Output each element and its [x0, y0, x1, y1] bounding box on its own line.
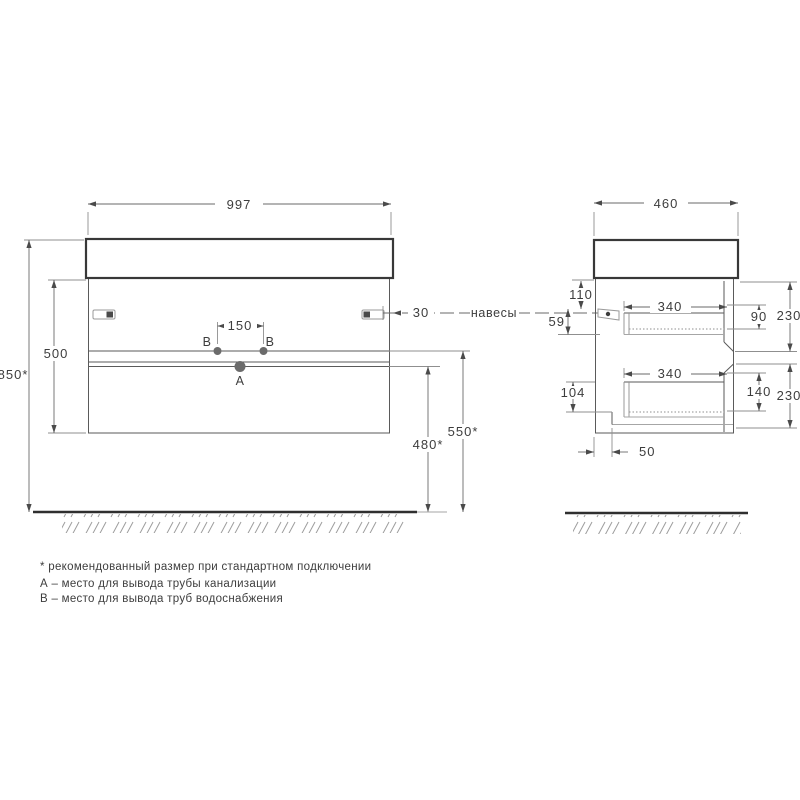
vanity-cabinet-drawing: B B A 997 850* 500 150 30 навесы — [0, 0, 800, 800]
footnote-point-b: B – место для вывода труб водоснабжения — [40, 593, 283, 605]
total-height-dim: 850* — [0, 367, 28, 382]
technical-drawing-page: B B A 997 850* 500 150 30 навесы — [0, 0, 800, 800]
water-height-dim: 550* — [448, 424, 479, 439]
hanger-top-dim: 110 — [569, 287, 593, 302]
top-drawer-depth-dim: 340 — [658, 299, 683, 314]
front-view: B B A 997 850* 500 150 30 навесы — [0, 197, 598, 533]
point-b-right-label: B — [266, 335, 275, 349]
footnotes: * рекомендованный размер при стандартном… — [40, 561, 371, 605]
lower-front-chamfer — [724, 364, 734, 373]
point-a-label: A — [236, 374, 245, 388]
footnote-point-a: А – место для вывода трубы канализации — [40, 578, 276, 590]
depth-dim: 460 — [654, 196, 679, 211]
drain-height-dim: 480* — [413, 437, 444, 452]
bottom-inner-height-dim: 140 — [747, 384, 772, 399]
hanger-drop-dim: 59 — [549, 314, 565, 329]
hanger-offset-dim: 30 — [413, 305, 429, 320]
bottom-drawer-depth-dim: 340 — [658, 366, 683, 381]
body-height-dim: 500 — [44, 346, 69, 361]
hangers-label: навесы — [471, 306, 517, 320]
between-drawers-dim: 104 — [561, 385, 586, 400]
outlet-spacing-dim: 150 — [228, 318, 253, 333]
pipe-recess-dim: 50 — [639, 444, 655, 459]
bottom-front-height-dim: 230 — [777, 388, 800, 403]
front-countertop — [86, 239, 393, 278]
hanger-offset-arrow — [393, 310, 401, 315]
front-left-hanger-icon — [93, 310, 115, 319]
water-outlet-point-left — [214, 347, 222, 355]
front-right-hanger-icon — [362, 310, 384, 319]
side-view: 460 110 59 104 340 90 230 — [549, 196, 800, 534]
side-hanger-icon — [598, 309, 619, 320]
width-dim: 997 — [227, 197, 252, 212]
upper-front-chamfer — [724, 342, 734, 352]
drain-outlet-point — [235, 361, 246, 372]
front-cabinet-body — [89, 278, 390, 433]
point-b-left-label: B — [203, 335, 212, 349]
top-front-height-dim: 230 — [777, 308, 800, 323]
floor-hatching-right — [573, 515, 741, 534]
footnote-recommended-size: * рекомендованный размер при стандартном… — [40, 561, 371, 573]
top-inner-height-dim: 90 — [751, 309, 767, 324]
side-countertop — [594, 240, 738, 278]
floor-hatching-left — [62, 514, 406, 533]
